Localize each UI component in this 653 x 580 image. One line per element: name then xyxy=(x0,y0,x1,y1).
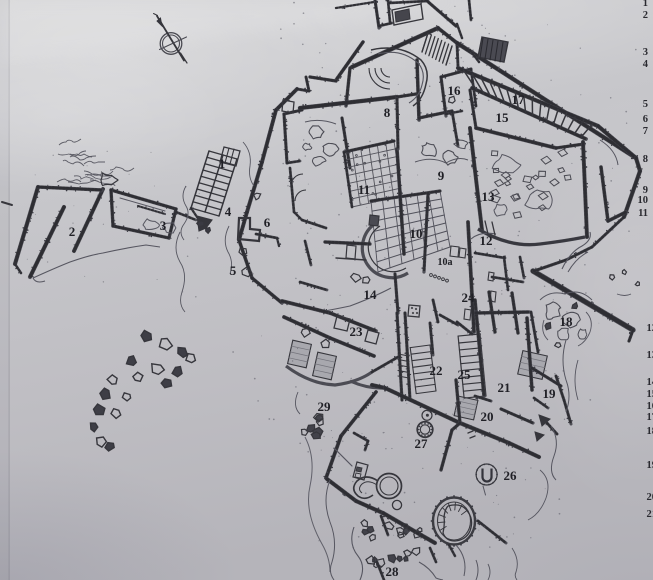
svg-text:10: 10 xyxy=(638,195,649,206)
svg-text:14: 14 xyxy=(647,377,653,388)
svg-text:27: 27 xyxy=(415,436,429,451)
svg-text:19: 19 xyxy=(543,386,557,401)
svg-text:17: 17 xyxy=(647,412,653,423)
svg-text:11: 11 xyxy=(638,208,648,219)
svg-text:5: 5 xyxy=(643,99,648,110)
svg-text:12: 12 xyxy=(647,323,653,334)
svg-text:13: 13 xyxy=(482,189,496,204)
svg-text:15: 15 xyxy=(647,389,653,400)
svg-text:5: 5 xyxy=(230,263,237,278)
svg-text:3: 3 xyxy=(643,47,648,58)
svg-text:14: 14 xyxy=(364,287,378,302)
svg-text:4: 4 xyxy=(643,59,649,70)
svg-text:10: 10 xyxy=(410,226,423,241)
svg-text:26: 26 xyxy=(504,468,518,483)
svg-text:19: 19 xyxy=(647,460,653,471)
svg-text:8: 8 xyxy=(384,105,391,120)
svg-text:18: 18 xyxy=(560,314,574,329)
svg-text:25: 25 xyxy=(458,367,472,382)
svg-text:8: 8 xyxy=(643,154,648,165)
svg-text:17: 17 xyxy=(512,92,526,107)
svg-text:11: 11 xyxy=(358,182,370,197)
svg-text:2: 2 xyxy=(643,10,648,21)
svg-text:29: 29 xyxy=(318,399,332,414)
svg-text:21: 21 xyxy=(498,380,511,395)
svg-text:18: 18 xyxy=(647,426,653,437)
svg-text:1: 1 xyxy=(219,156,226,171)
svg-text:16: 16 xyxy=(448,83,462,98)
svg-text:20: 20 xyxy=(647,492,653,503)
svg-text:20: 20 xyxy=(481,409,494,424)
svg-text:23: 23 xyxy=(350,324,364,339)
svg-text:15: 15 xyxy=(496,110,510,125)
svg-text:12: 12 xyxy=(480,233,493,248)
svg-text:1: 1 xyxy=(643,0,648,9)
svg-text:24: 24 xyxy=(462,290,476,305)
svg-text:2: 2 xyxy=(69,224,76,239)
svg-text:13: 13 xyxy=(647,350,653,361)
svg-text:9: 9 xyxy=(438,168,445,183)
svg-text:6: 6 xyxy=(643,114,648,125)
svg-text:6: 6 xyxy=(264,215,271,230)
svg-text:7: 7 xyxy=(643,126,648,137)
svg-text:28: 28 xyxy=(386,564,400,579)
svg-text:3: 3 xyxy=(160,218,167,233)
svg-text:21: 21 xyxy=(647,509,653,520)
svg-text:10a: 10a xyxy=(438,257,453,268)
svg-text:16: 16 xyxy=(647,401,653,412)
svg-text:22: 22 xyxy=(430,363,443,378)
svg-text:4: 4 xyxy=(225,204,232,219)
